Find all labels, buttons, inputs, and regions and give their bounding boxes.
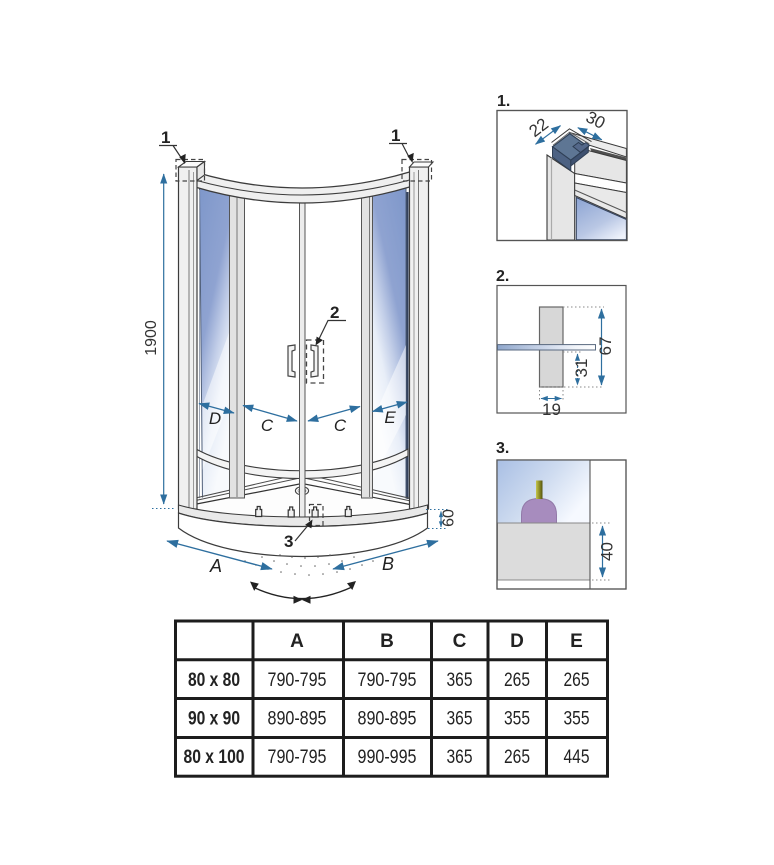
svg-text:365: 365 (447, 670, 473, 691)
svg-text:A: A (290, 631, 304, 652)
svg-text:31: 31 (572, 359, 591, 378)
svg-text:40: 40 (598, 542, 617, 561)
svg-text:D: D (510, 631, 524, 652)
svg-text:C: C (453, 631, 467, 652)
svg-text:E: E (384, 408, 396, 427)
svg-text:265: 265 (564, 670, 590, 691)
svg-text:67: 67 (596, 337, 615, 356)
svg-text:1900: 1900 (143, 320, 160, 356)
svg-text:E: E (570, 631, 583, 652)
svg-text:265: 265 (504, 670, 530, 691)
svg-text:1: 1 (391, 126, 400, 145)
svg-text:D: D (209, 409, 221, 428)
svg-text:2: 2 (330, 303, 339, 322)
svg-text:80 x 100: 80 x 100 (184, 747, 245, 768)
svg-text:80 x 80: 80 x 80 (188, 670, 240, 691)
svg-text:790-795: 790-795 (268, 747, 327, 768)
svg-text:A: A (209, 556, 222, 576)
svg-text:790-795: 790-795 (358, 670, 417, 691)
svg-text:3: 3 (284, 532, 293, 551)
svg-text:790-795: 790-795 (268, 670, 327, 691)
svg-text:355: 355 (564, 709, 590, 730)
svg-text:265: 265 (504, 747, 530, 768)
svg-text:445: 445 (564, 747, 590, 768)
svg-text:19: 19 (542, 400, 561, 419)
svg-text:365: 365 (447, 747, 473, 768)
svg-text:B: B (382, 554, 394, 574)
svg-text:1: 1 (161, 128, 170, 147)
svg-text:890-895: 890-895 (268, 709, 327, 730)
svg-text:890-895: 890-895 (358, 709, 417, 730)
svg-text:60: 60 (441, 509, 458, 527)
svg-text:990-995: 990-995 (358, 747, 417, 768)
svg-text:2.: 2. (496, 268, 509, 285)
svg-text:365: 365 (447, 709, 473, 730)
svg-text:1.: 1. (497, 93, 510, 110)
svg-text:90 x 90: 90 x 90 (188, 709, 240, 730)
svg-text:C: C (334, 416, 347, 435)
svg-text:C: C (261, 416, 274, 435)
svg-text:355: 355 (504, 709, 530, 730)
svg-text:3.: 3. (496, 440, 509, 457)
svg-text:B: B (380, 631, 394, 652)
